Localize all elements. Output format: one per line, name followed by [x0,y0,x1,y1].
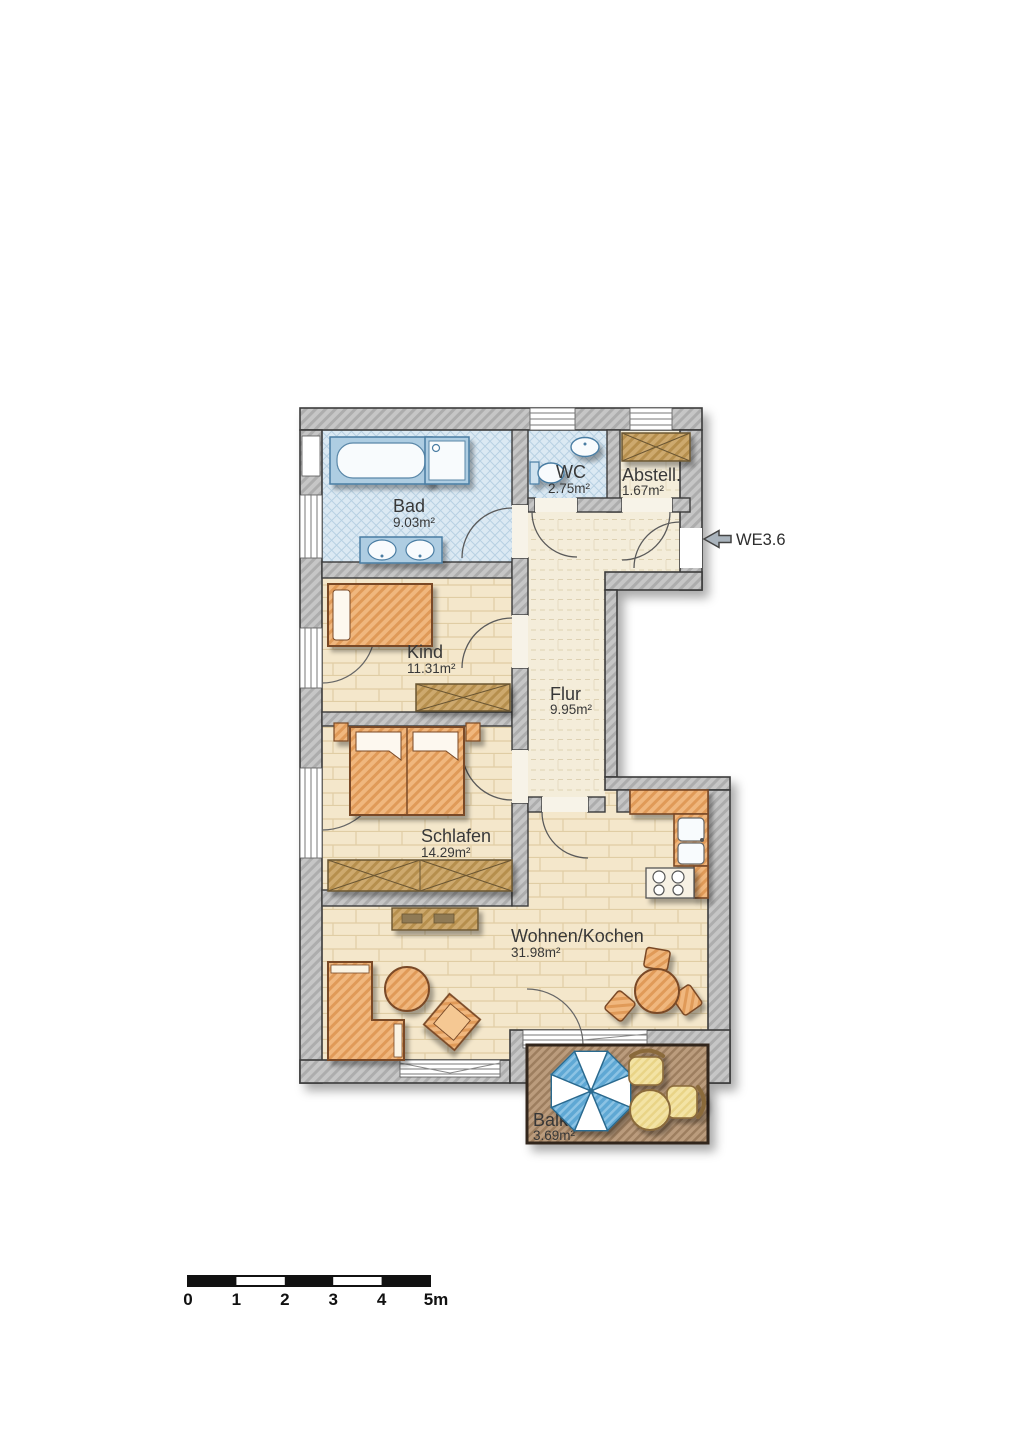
wall-flur-1 [512,430,528,505]
wall-notch-top [605,572,702,590]
kind-bed [328,584,432,646]
room-label-abstell: Abstell. [622,465,681,485]
scale-label-1: 1 [232,1290,241,1309]
area-label-schlafen: 14.29m² [421,845,471,860]
floorplan-drawing: Balk. 3.69m² [0,0,1018,1440]
area-label-balkon: 3.69m² [533,1128,576,1143]
wall-flur-living-r [588,797,605,812]
wall-kitchen-top [605,777,730,790]
room-label-kind: Kind [407,642,443,662]
room-label-bad: Bad [393,496,425,516]
balcony-chair-1 [629,1057,663,1085]
kitchen-sink-basin-2 [678,843,704,864]
scale-label-2: 2 [280,1290,289,1309]
area-label-abstell: 1.67m² [622,483,665,498]
double-bed [334,723,480,815]
door-gap-schlafen [512,750,528,803]
entrance-marker: WE3.6 [704,531,786,550]
wc-sink [571,438,599,457]
scale-bar: 0 1 2 3 4 5m [183,1276,448,1309]
scale-label-5m: 5m [424,1290,449,1309]
wall-wc-stub-r [577,498,622,512]
apartment-building: Balk. 3.69m² [300,408,730,1143]
door-gap-wc [535,498,577,512]
bathtub [330,437,432,484]
balcony-chair-2 [667,1086,697,1118]
room-label-wc: WC [556,462,586,482]
stove [646,868,694,898]
scale-segment-2 [285,1276,333,1286]
shower [425,437,469,484]
area-label-wohnen: 31.98m² [511,945,561,960]
room-label-flur: Flur [550,684,581,704]
window-bad [300,495,322,558]
wall-niche-bad [302,436,320,476]
patio-umbrella [551,1051,630,1130]
abstell-shelf [622,433,690,461]
kind-wardrobe [416,684,510,711]
scale-segment-3 [382,1276,430,1286]
room-label-wohnen: Wohnen/Kochen [511,926,644,946]
wall-schlafen-bottom [322,890,512,906]
wall-flur-2 [512,558,528,615]
room-label-schlafen: Schlafen [421,826,491,846]
wall-wc-stub-l [528,498,535,512]
door-gap-entrance [680,528,702,568]
wall-flur-4 [512,803,528,906]
wall-kind-schlafen [322,712,512,726]
wall-flur-living-l [528,797,542,812]
entrance-arrow-icon [704,531,731,548]
window-top-wc [530,408,575,430]
kitchen-sink-basin-1 [678,818,704,841]
schlafen-wardrobe [328,860,512,891]
area-label-wc: 2.75m² [548,481,591,496]
door-gap-kind [512,615,528,668]
dining-chair-top [643,947,670,971]
balcony: Balk. 3.69m² [527,1045,708,1143]
floorplan-page: Balk. 3.69m² [0,0,1018,1440]
area-label-bad: 9.03m² [393,515,436,530]
scale-label-4: 4 [377,1290,387,1309]
door-gap-bad [512,505,528,558]
coffee-table [385,967,429,1011]
door-gap-abstell [622,498,672,512]
wall-abstell-stub [672,498,690,512]
scale-label-3: 3 [328,1290,337,1309]
area-label-kind: 11.31m² [407,661,456,676]
wall-bad-bottom [322,562,512,578]
unit-label: WE3.6 [736,531,786,549]
wall-flur-3 [512,668,528,750]
area-label-flur: 9.95m² [550,702,593,717]
dining-table [635,969,679,1013]
double-sink [360,537,442,563]
window-top-abstell [630,408,672,430]
flur-floor [528,512,605,812]
scale-label-0: 0 [183,1290,192,1309]
door-gap-living [542,797,588,812]
scale-segment-1 [188,1276,236,1286]
sideboard [392,908,478,930]
wall-notch-left [605,590,617,777]
window-living-bottom [400,1060,500,1077]
balcony-table [630,1090,670,1130]
wall-kitchen-stub [617,790,630,812]
